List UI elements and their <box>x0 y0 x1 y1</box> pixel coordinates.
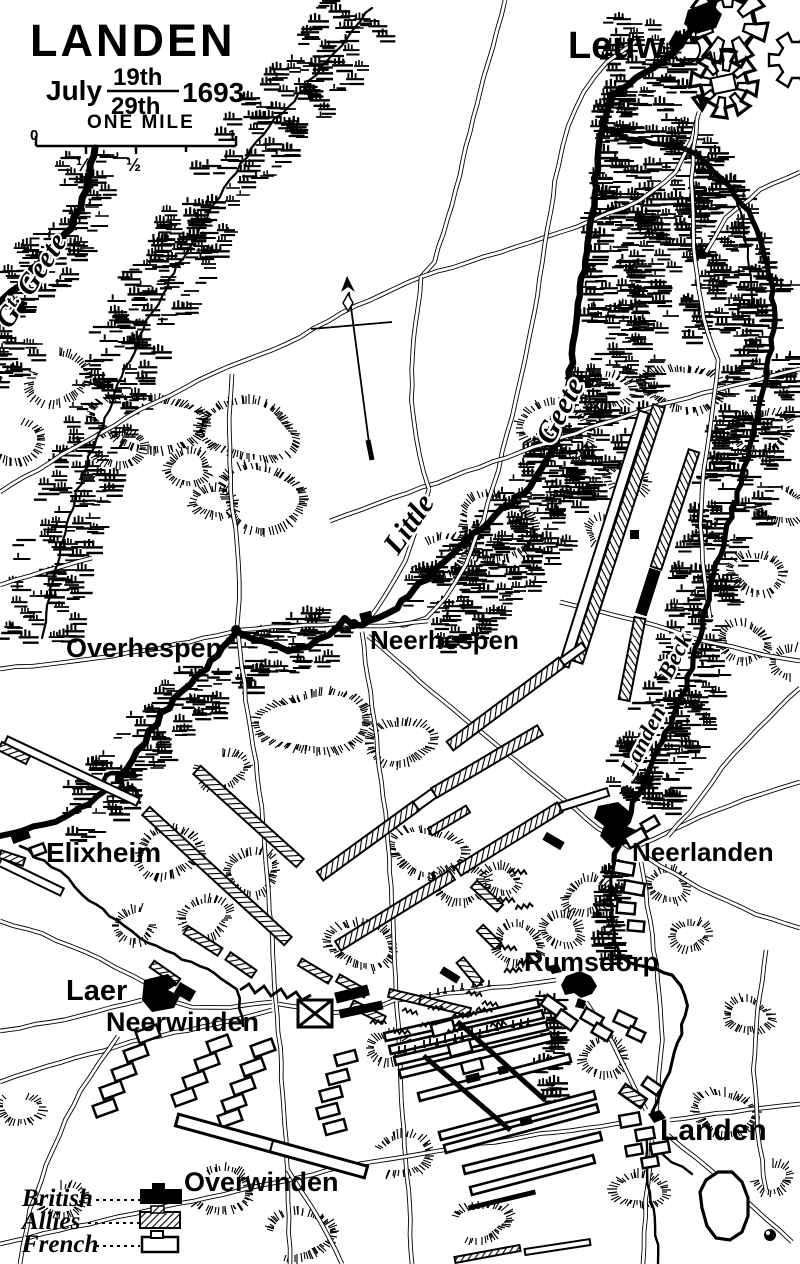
svg-text:Neerlanden: Neerlanden <box>632 837 774 867</box>
svg-text:LANDEN: LANDEN <box>30 15 236 66</box>
svg-text:July: July <box>46 75 102 106</box>
svg-text:Elixheim: Elixheim <box>46 837 161 868</box>
svg-text:19th: 19th <box>113 64 162 91</box>
svg-text:½: ½ <box>126 155 141 175</box>
svg-text:Neerwinden: Neerwinden <box>106 1007 259 1037</box>
svg-text:French: French <box>21 1231 98 1258</box>
svg-text:Leuw: Leuw <box>568 25 666 67</box>
svg-text:Landen: Landen <box>660 1114 767 1147</box>
svg-text:1: 1 <box>228 127 236 144</box>
svg-text:Overhespen: Overhespen <box>66 633 222 663</box>
svg-text:Overwinden: Overwinden <box>184 1167 339 1197</box>
svg-text:Rumsdorp: Rumsdorp <box>524 947 659 977</box>
svg-text:Neerhespen: Neerhespen <box>370 625 519 655</box>
svg-text:0: 0 <box>30 127 38 144</box>
svg-text:Laer: Laer <box>66 975 127 1007</box>
svg-text:¼: ¼ <box>76 155 93 175</box>
svg-text:1693: 1693 <box>182 77 244 108</box>
svg-text:ONE MILE: ONE MILE <box>87 112 195 133</box>
